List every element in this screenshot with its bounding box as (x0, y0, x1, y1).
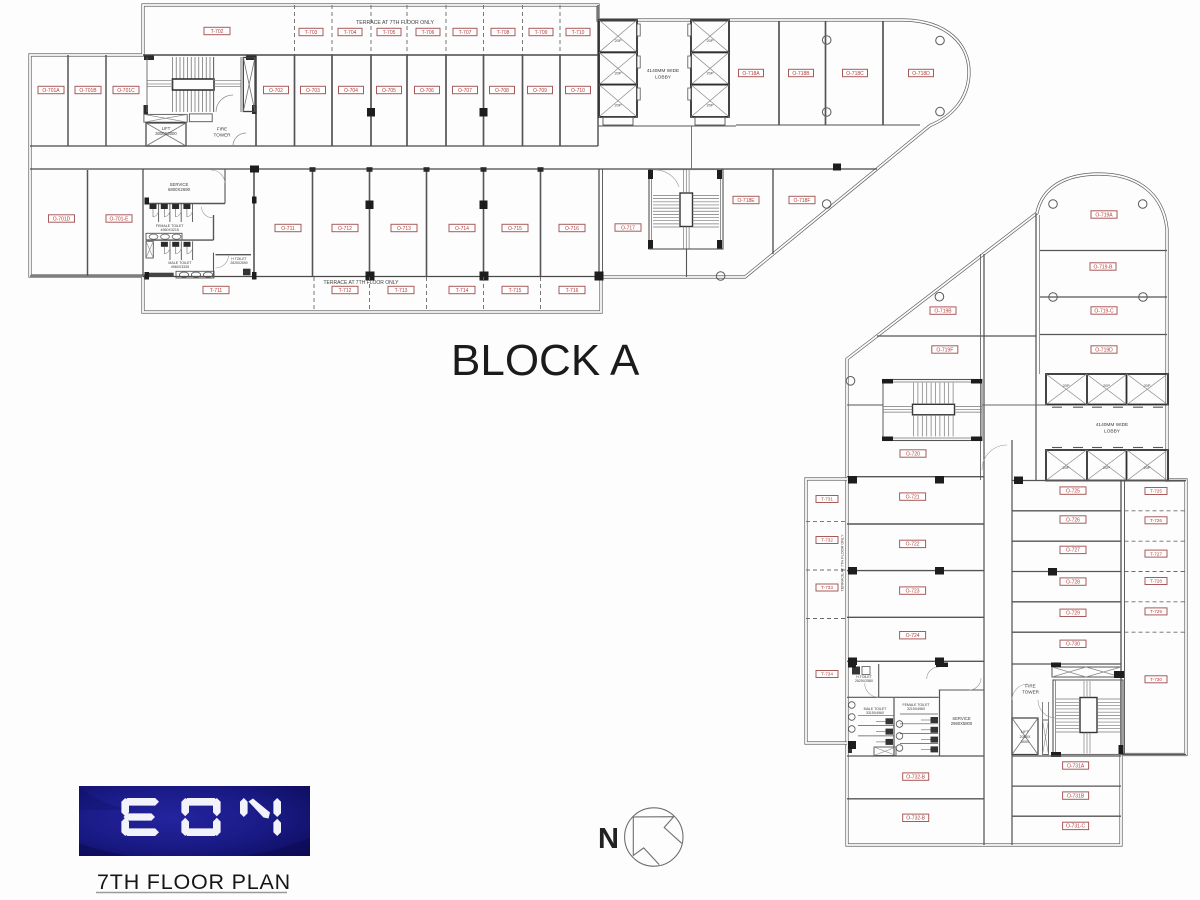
svg-text:T-725: T-725 (1150, 489, 1162, 494)
svg-text:O-722: O-722 (906, 542, 920, 548)
svg-text:O-711: O-711 (281, 226, 295, 232)
svg-text:O-701B: O-701B (79, 88, 97, 94)
svg-text:4960X3335: 4960X3335 (171, 265, 189, 269)
svg-text:3215X4960: 3215X4960 (907, 707, 925, 711)
svg-text:LIFT: LIFT (1021, 730, 1029, 734)
svg-text:O-718E: O-718E (737, 198, 755, 204)
svg-text:20P: 20P (706, 38, 713, 43)
svg-text:O-716: O-716 (565, 226, 579, 232)
svg-text:LOBBY: LOBBY (655, 75, 672, 81)
svg-text:O-732-B: O-732-B (906, 774, 926, 780)
svg-text:2625X2690: 2625X2690 (230, 261, 247, 265)
svg-text:20P: 20P (1103, 383, 1110, 388)
svg-text:LOBBY: LOBBY (1104, 429, 1121, 435)
svg-text:O-730: O-730 (1066, 642, 1080, 648)
svg-text:O-714: O-714 (455, 226, 469, 232)
svg-text:TOWER: TOWER (213, 133, 231, 138)
svg-text:T-714: T-714 (456, 288, 469, 294)
svg-text:T-706: T-706 (422, 30, 435, 36)
svg-text:20P: 20P (1103, 465, 1110, 470)
svg-text:T-733: T-733 (821, 585, 833, 590)
svg-text:O-719-C: O-719-C (1094, 308, 1114, 314)
svg-text:TERRACE AT 7TH FLOOR ONLY: TERRACE AT 7TH FLOOR ONLY (356, 20, 434, 26)
svg-text:O-728: O-728 (1066, 579, 1080, 585)
svg-text:O-701D: O-701D (53, 216, 71, 222)
svg-text:O-719D: O-719D (1095, 347, 1113, 353)
svg-text:T-728: T-728 (1150, 579, 1162, 584)
svg-text:T-730: T-730 (1150, 677, 1162, 682)
svg-text:O-701C: O-701C (117, 88, 135, 94)
svg-text:20P: 20P (614, 70, 621, 75)
svg-text:20P: 20P (706, 103, 713, 108)
svg-text:20P: 20P (1062, 465, 1069, 470)
svg-text:4960X3215: 4960X3215 (161, 228, 179, 232)
svg-text:O-726: O-726 (1066, 517, 1080, 523)
svg-text:O-731-C: O-731-C (1066, 824, 1086, 830)
svg-text:TERRACE AT 7TH FLOOR ONLY: TERRACE AT 7TH FLOOR ONLY (323, 280, 399, 286)
svg-text:5000: 5000 (1021, 740, 1029, 744)
svg-text:T-715: T-715 (509, 288, 522, 294)
svg-text:O-704: O-704 (344, 88, 358, 94)
svg-text:O-718F: O-718F (794, 198, 811, 204)
svg-text:O-732-B: O-732-B (906, 816, 926, 822)
svg-text:T-716: T-716 (566, 288, 579, 294)
svg-text:T-713: T-713 (395, 288, 408, 294)
svg-text:4140MM WIDE: 4140MM WIDE (1096, 422, 1129, 428)
svg-text:T-732: T-732 (821, 538, 833, 543)
svg-text:O-727: O-727 (1066, 548, 1080, 554)
svg-text:T-709: T-709 (535, 30, 548, 36)
svg-text:O-720: O-720 (906, 451, 920, 457)
svg-text:20P: 20P (706, 70, 713, 75)
svg-text:O-719F: O-719F (936, 347, 953, 353)
svg-text:2000X: 2000X (1020, 735, 1031, 739)
svg-text:O-725: O-725 (1066, 488, 1080, 494)
svg-text:20P: 20P (1143, 383, 1150, 388)
svg-text:O-721: O-721 (906, 494, 920, 500)
svg-text:O-708: O-708 (495, 88, 509, 94)
svg-text:O-710: O-710 (571, 88, 585, 94)
svg-text:O-718B: O-718B (792, 71, 810, 77)
svg-text:T-705: T-705 (383, 30, 396, 36)
svg-text:2960X5800: 2960X5800 (951, 721, 973, 726)
svg-text:T-702: T-702 (211, 29, 224, 35)
svg-text:3315X4960: 3315X4960 (866, 711, 884, 715)
svg-text:O-703: O-703 (306, 88, 320, 94)
svg-text:O-715: O-715 (508, 226, 522, 232)
svg-text:T-707: T-707 (459, 30, 472, 36)
svg-text:O-719B: O-719B (934, 308, 952, 314)
svg-text:T-710: T-710 (572, 30, 585, 36)
svg-text:O-705: O-705 (382, 88, 396, 94)
svg-text:TOWER: TOWER (1022, 690, 1040, 695)
svg-text:O-713: O-713 (397, 226, 411, 232)
svg-text:O-724: O-724 (906, 633, 920, 639)
svg-text:T-729: T-729 (1150, 609, 1162, 614)
svg-text:O-723: O-723 (906, 588, 920, 594)
svg-text:T-711: T-711 (210, 288, 223, 294)
svg-text:BLOCK A: BLOCK A (451, 336, 640, 385)
svg-text:20P: 20P (1062, 383, 1069, 388)
svg-text:T-734: T-734 (821, 672, 833, 677)
svg-text:T-712: T-712 (339, 288, 352, 294)
svg-text:O-707: O-707 (458, 88, 472, 94)
svg-text:20P: 20P (614, 103, 621, 108)
svg-text:O-706: O-706 (420, 88, 434, 94)
svg-text:20P: 20P (614, 38, 621, 43)
svg-text:O-701A: O-701A (42, 88, 60, 94)
svg-text:O-729: O-729 (1066, 611, 1080, 617)
svg-text:O-709: O-709 (533, 88, 547, 94)
svg-text:T-731: T-731 (821, 497, 833, 502)
svg-text:T-727: T-727 (1150, 551, 1162, 556)
svg-text:O-701-E: O-701-E (110, 216, 130, 222)
svg-text:O-712: O-712 (338, 226, 352, 232)
svg-text:20P: 20P (1143, 465, 1150, 470)
svg-text:O-731A: O-731A (1067, 763, 1085, 769)
svg-text:O-718A: O-718A (742, 71, 760, 77)
svg-text:O-719-B: O-719-B (1094, 264, 1114, 270)
svg-text:TERRACE AT 7TH FLOOR ONLY: TERRACE AT 7TH FLOOR ONLY (841, 534, 845, 591)
svg-text:2625X2580: 2625X2580 (855, 679, 873, 683)
svg-text:T-704: T-704 (344, 30, 357, 36)
svg-text:O-719A: O-719A (1095, 212, 1113, 218)
svg-text:T-708: T-708 (497, 30, 510, 36)
svg-text:T-703: T-703 (305, 30, 318, 36)
svg-text:FIRE: FIRE (217, 127, 227, 132)
svg-text:O-718D: O-718D (912, 71, 930, 77)
svg-text:N: N (598, 823, 619, 855)
svg-text:7TH FLOOR PLAN: 7TH FLOOR PLAN (97, 870, 291, 894)
svg-text:O-702: O-702 (269, 88, 283, 94)
svg-text:O-731B: O-731B (1067, 793, 1085, 799)
svg-text:6800X2690: 6800X2690 (168, 187, 191, 192)
svg-text:O-717: O-717 (621, 225, 635, 231)
svg-text:4140MM WIDE: 4140MM WIDE (647, 68, 680, 74)
svg-text:O-718C: O-718C (846, 71, 864, 77)
svg-text:3000X3000: 3000X3000 (155, 131, 177, 136)
svg-text:T-726: T-726 (1150, 518, 1162, 523)
